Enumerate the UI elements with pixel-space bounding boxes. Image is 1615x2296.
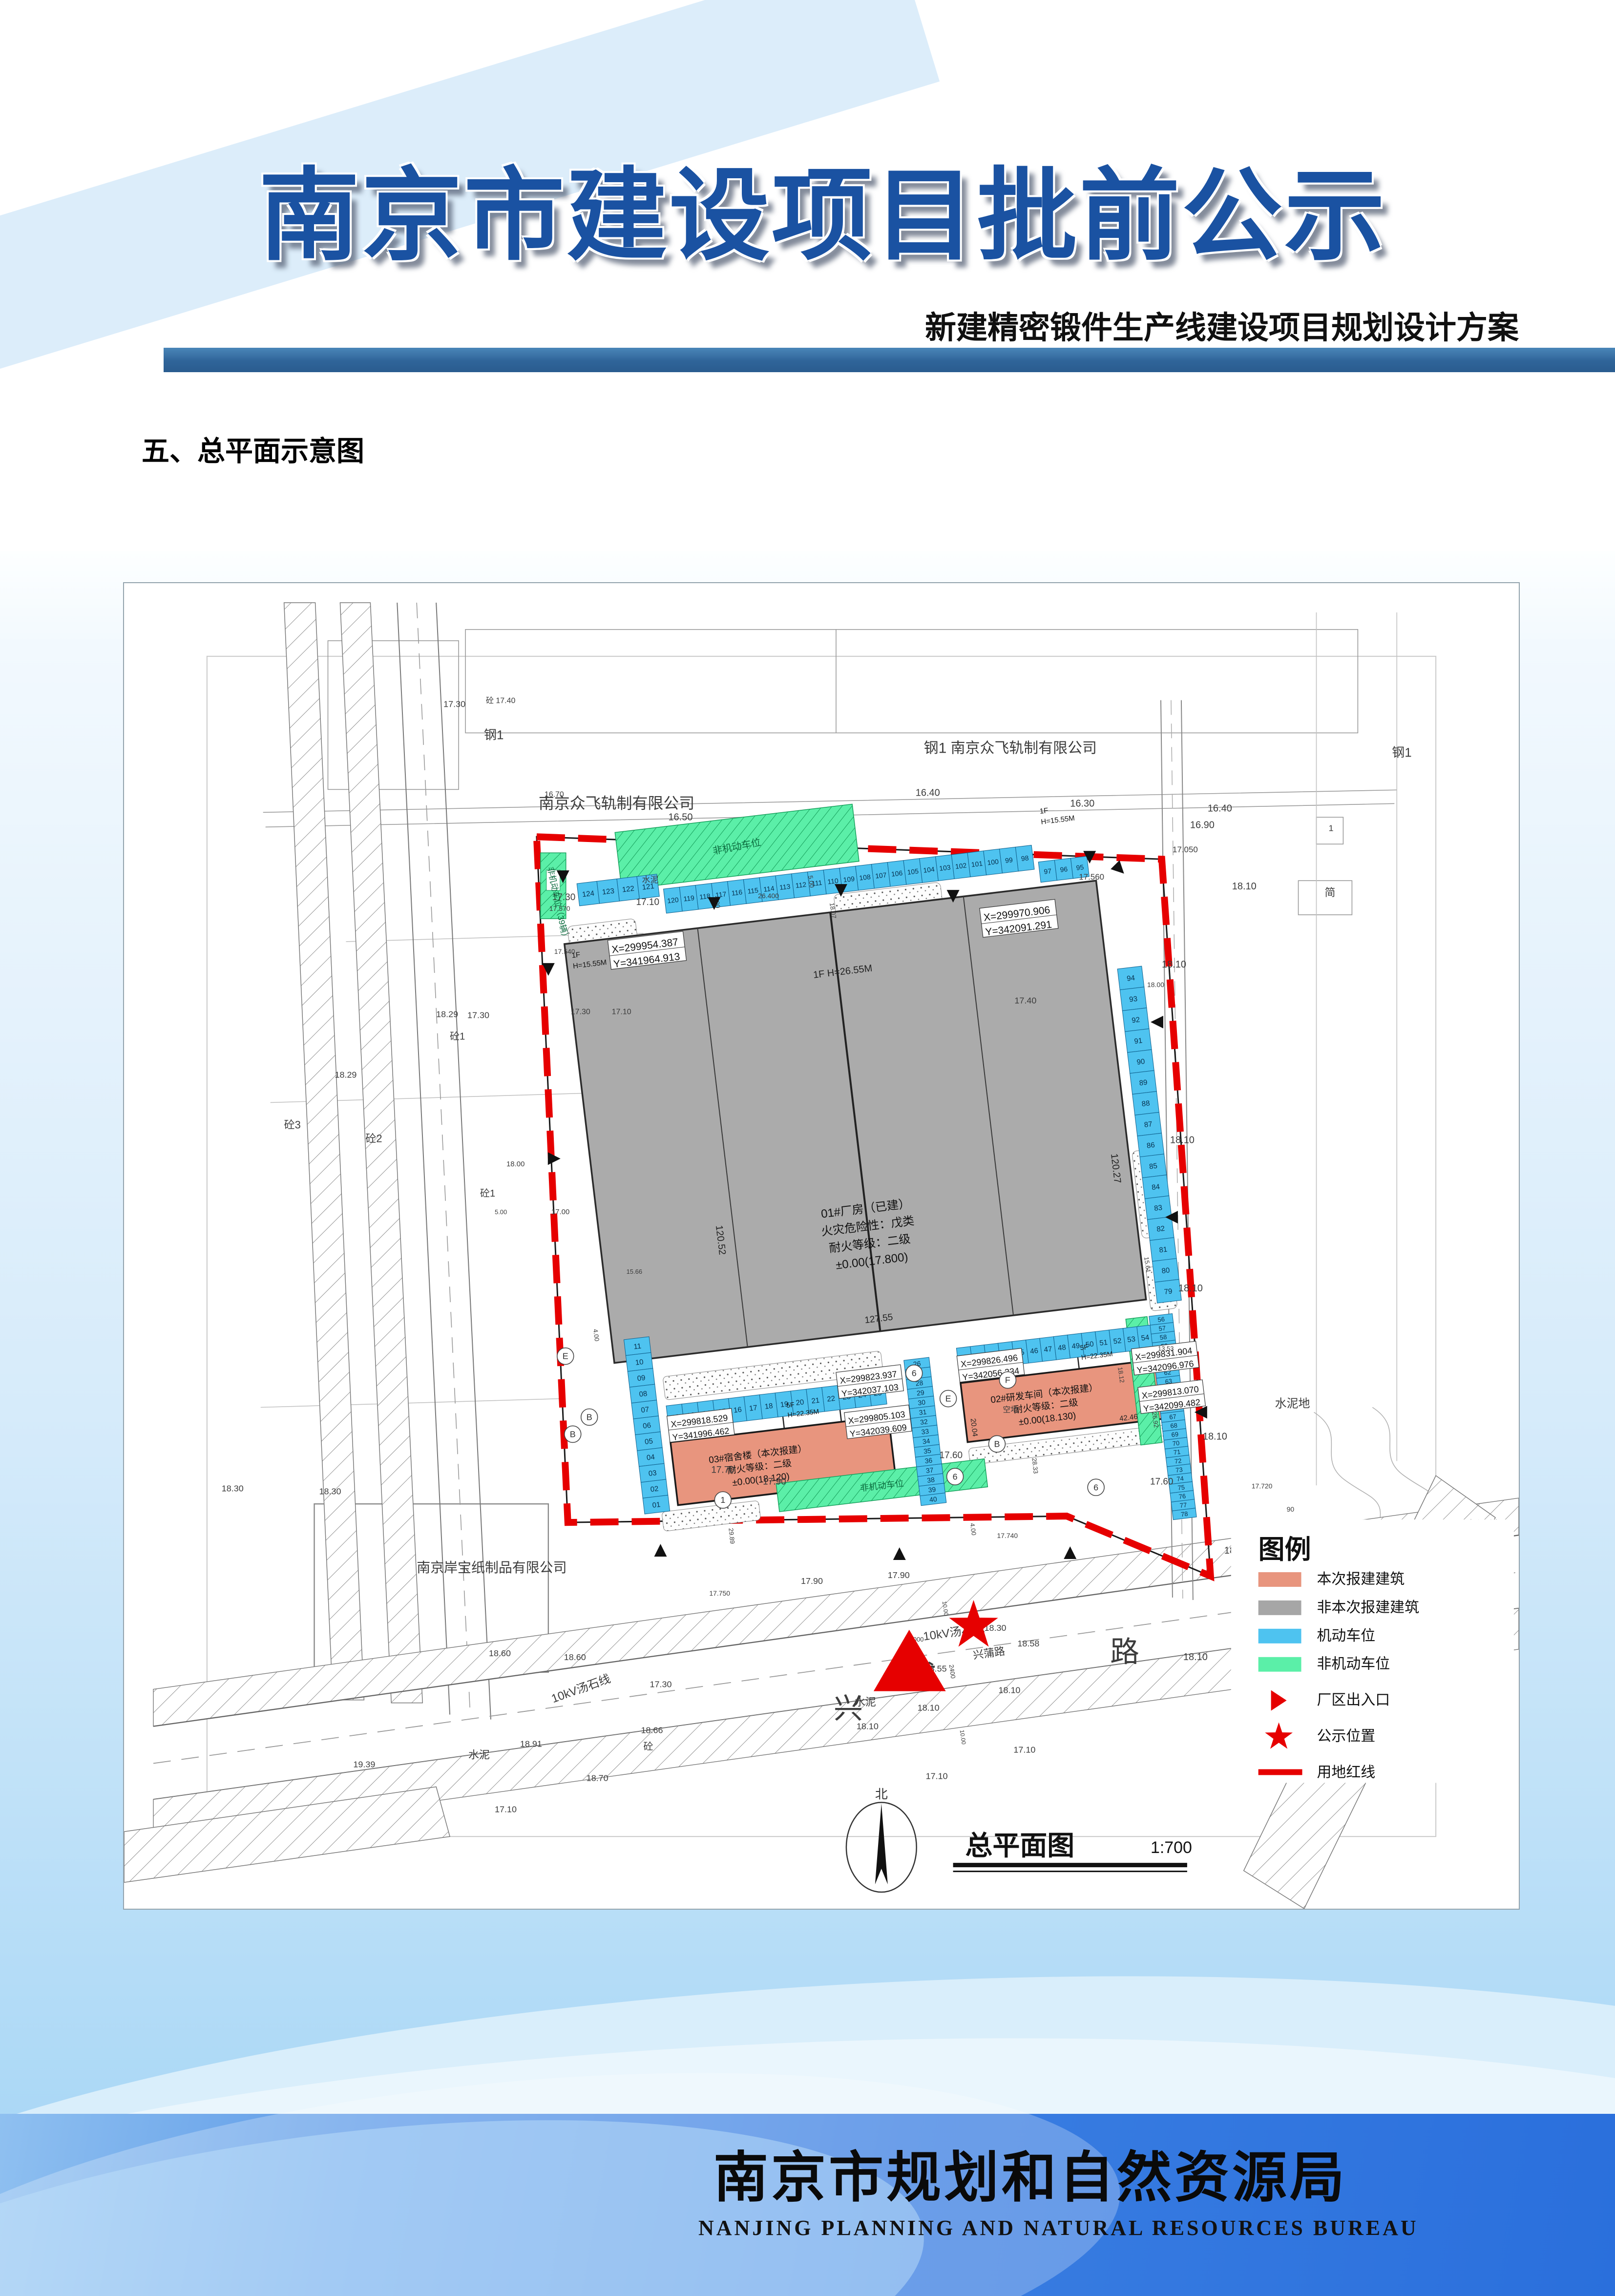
project-subtitle: 新建精密锻件生产线建设项目规划设计方案 <box>733 303 1519 348</box>
stall-number: 05 <box>644 1437 653 1446</box>
legend-swatch <box>1258 1657 1301 1672</box>
stall-number: 86 <box>1146 1141 1155 1150</box>
stall-number: 49 <box>1071 1342 1081 1351</box>
svg-text:E: E <box>563 1351 568 1361</box>
map-annotation: 18.70 <box>587 1773 608 1783</box>
map-annotation: 空地 <box>1003 1405 1018 1414</box>
stall-number: 53 <box>1127 1335 1136 1344</box>
map-annotation: 16.90 <box>1190 820 1215 830</box>
map-annotation: 10.00 <box>959 1729 967 1745</box>
stall-number: 67 <box>1169 1412 1176 1421</box>
north-compass: 北 <box>846 1787 917 1892</box>
legend-swatch <box>1258 1572 1301 1587</box>
plan-caption-scale: 1:700 <box>1151 1838 1192 1857</box>
map-annotation: 90 <box>1287 1505 1295 1513</box>
stall-number: 31 <box>919 1408 927 1416</box>
section-heading: 五、总平面示意图 <box>142 429 364 469</box>
map-legend: 图例 本次报建建筑非本次报建建筑机动车位非机动车位厂区出入口公示位置用地红线 <box>1231 1519 1514 1783</box>
map-annotation: 18.10 <box>857 1722 879 1731</box>
map-annotation: 28.33 <box>1030 1457 1039 1474</box>
stall-number: 109 <box>843 875 855 884</box>
map-annotation: 17.10 <box>636 897 659 907</box>
legend-item: 机动车位 <box>1258 1628 1376 1644</box>
map-annotation: 水泥 <box>855 1696 876 1708</box>
stall-number: 105 <box>907 867 919 876</box>
map-annotation: 18.10 <box>1232 881 1257 892</box>
map-annotation: 砼 <box>644 1741 653 1752</box>
stall-number: 46 <box>1029 1347 1039 1356</box>
bureau-name-en: NANJING PLANNING AND NATURAL RESOURCES B… <box>698 2215 1363 2240</box>
map-annotation: 18.10 <box>1183 1652 1208 1663</box>
north-label: 北 <box>875 1787 888 1801</box>
map-annotation: 29.89 <box>727 1528 736 1544</box>
map-annotation: 18.29 <box>436 1010 458 1019</box>
stall-number: 94 <box>1126 974 1135 983</box>
map-annotation: 18.66 <box>641 1726 663 1735</box>
stall-number: 16 <box>733 1406 742 1415</box>
map-annotation: 17.40 <box>1014 996 1036 1006</box>
legend-swatch <box>1258 1629 1301 1643</box>
stall-number: 95 <box>1076 863 1085 872</box>
stall-number: 74 <box>1176 1474 1184 1483</box>
stall-number: 34 <box>922 1437 931 1446</box>
stall-number: 101 <box>971 860 983 869</box>
map-annotation: 水泥 <box>468 1748 490 1761</box>
title-underline-bar <box>164 348 1615 372</box>
stall-number: 69 <box>1171 1431 1179 1439</box>
site-plan-svg: 1241231221211201191181171161151141131121… <box>124 583 1519 1909</box>
stall-number: 93 <box>1129 995 1138 1004</box>
map-annotation: 16.40 <box>1208 803 1232 814</box>
stall-number: 71 <box>1173 1448 1181 1456</box>
stall-number: 120 <box>667 896 679 905</box>
map-annotation: 南京岸宝纸制品有限公司 <box>417 1560 566 1575</box>
site-content: 1241231221211201191181171161151141131121… <box>552 771 1218 1583</box>
stall-number: 03 <box>648 1469 657 1478</box>
map-annotation: 18.60 <box>489 1648 511 1658</box>
stall-number: 47 <box>1044 1345 1053 1354</box>
map-annotation: 17.740 <box>997 1532 1018 1539</box>
map-annotation: 18.10 <box>998 1685 1020 1695</box>
map-annotation: 17.90 <box>888 1570 910 1580</box>
site-plan-drawing: 1241231221211201191181171161151141131121… <box>123 582 1520 1910</box>
stall-number: 38 <box>926 1475 935 1484</box>
stall-number: 01 <box>652 1500 661 1510</box>
legend-label: 机动车位 <box>1317 1628 1376 1644</box>
map-annotation: 18.60 <box>564 1652 586 1662</box>
map-annotation: 17.30 <box>571 1008 590 1016</box>
stall-number: 58 <box>1159 1333 1167 1342</box>
map-annotation: 17.00 <box>551 1208 569 1216</box>
stall-number: 72 <box>1174 1457 1182 1465</box>
building-label: 5F <box>1080 1343 1089 1351</box>
legend-item: 非本次报建建筑 <box>1258 1600 1419 1616</box>
stall-number: 77 <box>1179 1501 1187 1510</box>
stall-number: 122 <box>622 885 635 894</box>
bureau-name-cn: 南京市规划和自然资源局 <box>698 2133 1363 2212</box>
map-annotation: 18.10 <box>1170 1135 1195 1145</box>
building-label: 1F <box>1039 806 1049 816</box>
map-annotation: 17.10 <box>612 1008 631 1016</box>
direction-arrow-icon <box>1151 1016 1163 1029</box>
stall-number: 09 <box>637 1373 646 1383</box>
stall-number: 29 <box>916 1389 925 1397</box>
map-annotation: 砼2 <box>365 1132 382 1144</box>
stall-number: 70 <box>1172 1439 1180 1448</box>
svg-text:B: B <box>587 1412 592 1422</box>
stall-number: 17 <box>749 1404 758 1413</box>
legend-item: 非机动车位 <box>1258 1656 1390 1672</box>
stall-number: 119 <box>683 894 695 903</box>
legend-label: 本次报建建筑 <box>1317 1571 1405 1587</box>
stall-number: 18 <box>764 1402 774 1411</box>
map-annotation: 17.560 <box>1079 872 1104 882</box>
building-label: H=15.55M <box>1041 814 1075 826</box>
map-annotation: 18.30 <box>222 1483 244 1493</box>
stall-number: 81 <box>1159 1245 1168 1255</box>
stall-number: 88 <box>1141 1099 1151 1108</box>
map-annotation: 砼 17.40 <box>486 696 515 705</box>
map-annotation: 17.30 <box>443 699 465 709</box>
stall-number: 100 <box>987 858 999 867</box>
stall-number: 92 <box>1131 1015 1140 1025</box>
stall-number: 21 <box>811 1396 820 1406</box>
map-annotation: 1 <box>1328 823 1333 833</box>
stall-number: 54 <box>1141 1333 1150 1343</box>
map-annotation: 18.10 <box>918 1703 940 1713</box>
svg-text:6: 6 <box>912 1369 917 1378</box>
map-annotation: 18.10 <box>1178 1283 1203 1294</box>
svg-text:E: E <box>945 1394 951 1404</box>
stall-number: 124 <box>582 889 595 899</box>
direction-arrow-icon <box>654 1544 667 1557</box>
map-annotation: 4.00 <box>592 1328 601 1342</box>
direction-arrow-icon <box>1064 1546 1076 1559</box>
stall-number: 40 <box>929 1495 938 1504</box>
map-annotation: 18.10 <box>1203 1431 1227 1442</box>
svg-text:6: 6 <box>953 1472 958 1481</box>
map-annotation: 2400 <box>948 1664 957 1679</box>
legend-label: 非本次报建建筑 <box>1317 1600 1420 1616</box>
map-annotation: 砼3 <box>284 1118 301 1131</box>
map-annotation: 17.720 <box>1252 1482 1273 1490</box>
map-annotation: 兴蒲路 <box>972 1645 1006 1662</box>
stall-number: 123 <box>602 887 615 897</box>
stall-number: 107 <box>875 871 887 880</box>
stall-number: 75 <box>1177 1483 1185 1492</box>
stall-number: 08 <box>639 1390 648 1399</box>
stall-number: 35 <box>923 1447 932 1455</box>
map-annotation: 15.66 <box>627 1268 642 1275</box>
stall-number: 106 <box>891 869 903 878</box>
stall-number: 07 <box>641 1405 650 1414</box>
map-annotation: 18.91 <box>520 1739 542 1748</box>
stall-number: 68 <box>1170 1422 1178 1430</box>
map-annotation: 19.39 <box>353 1759 375 1769</box>
legend-redline-icon <box>1258 1769 1302 1775</box>
map-annotation: 17.750 <box>709 1589 730 1597</box>
map-annotation: 16.50 <box>668 812 692 822</box>
direction-arrow-icon <box>1111 860 1129 878</box>
stall-number: 84 <box>1151 1182 1160 1192</box>
svg-text:F: F <box>1005 1375 1010 1385</box>
stall-number: 37 <box>925 1466 934 1474</box>
map-annotation: 17.70 <box>711 1465 734 1475</box>
stall-number: 48 <box>1057 1343 1067 1352</box>
map-annotation: 5.00 <box>495 1208 507 1216</box>
map-annotation: 简 <box>1324 886 1335 899</box>
stall-number: 22 <box>826 1394 836 1404</box>
stall-number: 56 <box>1157 1315 1165 1324</box>
map-annotation: 16.70 <box>545 790 564 799</box>
legend-label: 非机动车位 <box>1317 1656 1390 1672</box>
map-annotation: 17.60 <box>1150 1476 1173 1487</box>
map-annotation: 17.10 <box>495 1804 517 1814</box>
plan-caption-title: 总平面图 <box>965 1830 1075 1861</box>
stalls-left-col: 1110090807060504030201 <box>624 1337 670 1514</box>
stall-number: 57 <box>1158 1324 1166 1332</box>
stall-number: 103 <box>939 863 951 872</box>
map-annotation: 26.400 <box>758 892 779 900</box>
stall-number: 80 <box>1161 1266 1171 1275</box>
map-annotation: 18.00 <box>1147 981 1164 989</box>
stall-number: 32 <box>920 1417 928 1426</box>
stall-number: 06 <box>642 1421 651 1431</box>
map-annotation: 钢1 <box>484 728 503 742</box>
map-annotation: 水泥 <box>642 875 659 885</box>
stall-number: 90 <box>1136 1057 1146 1067</box>
stall-number: 02 <box>650 1485 659 1494</box>
map-annotation: 18.30 <box>319 1486 341 1496</box>
map-annotation: 4.00 <box>969 1522 978 1536</box>
stall-number: 87 <box>1144 1120 1153 1129</box>
map-annotation: 水泥地 <box>1275 1397 1310 1411</box>
map-annotation: 17.540 <box>554 948 575 955</box>
legend-label: 用地红线 <box>1317 1764 1376 1780</box>
stall-number: 39 <box>928 1485 937 1494</box>
map-annotation: 路 <box>1110 1636 1139 1668</box>
poster-page: 南京市建设项目批前公示 新建精密锻件生产线建设项目规划设计方案 五、总平面示意图 <box>0 0 1615 2296</box>
map-annotation: 砼1 <box>450 1031 465 1042</box>
stall-number: 76 <box>1178 1492 1186 1500</box>
stall-number: 91 <box>1134 1036 1143 1046</box>
map-annotation: 15.61 <box>1143 1256 1152 1273</box>
stall-number: 112 <box>795 881 807 890</box>
stall-number: 33 <box>921 1427 930 1436</box>
stall-number: 108 <box>859 873 871 882</box>
legend-label: 公示位置 <box>1317 1728 1376 1745</box>
stall-number: 04 <box>646 1453 655 1462</box>
coordinate-callout: X=299805.103Y=342039.609 <box>844 1405 912 1439</box>
stall-number: 113 <box>779 882 791 891</box>
map-annotation: 18.00 <box>506 1160 524 1168</box>
stall-number: 36 <box>924 1456 933 1465</box>
legend-title: 图例 <box>1258 1535 1311 1564</box>
stall-number: 79 <box>1164 1287 1173 1296</box>
map-annotation: 16.40 <box>916 787 940 798</box>
stall-number: 73 <box>1175 1466 1183 1474</box>
map-annotation: 18.29 <box>335 1070 357 1080</box>
stall-number: 83 <box>1154 1203 1163 1213</box>
svg-text:B: B <box>994 1439 1000 1449</box>
stall-number: 78 <box>1180 1510 1188 1518</box>
stall-number: 104 <box>923 865 935 874</box>
stall-number: 82 <box>1156 1224 1165 1234</box>
stall-number: 97 <box>1044 867 1052 876</box>
map-annotation: 18.58 <box>1017 1639 1039 1648</box>
map-annotation: 17.90 <box>801 1576 823 1586</box>
legend-swatch <box>1258 1601 1301 1615</box>
stall-number: 116 <box>731 888 743 897</box>
map-annotation: 17.10 <box>926 1771 948 1781</box>
stall-number: 20 <box>796 1398 805 1407</box>
map-annotation: 17.050 <box>1173 845 1198 854</box>
map-annotation: 17.30 <box>650 1680 672 1689</box>
map-annotation: 17.90 <box>763 1476 786 1487</box>
footer-band: 南京市规划和自然资源局 NANJING PLANNING AND NATURAL… <box>0 2114 1615 2296</box>
svg-text:1: 1 <box>720 1495 725 1505</box>
svg-text:6: 6 <box>1093 1482 1098 1492</box>
direction-arrow-icon <box>893 1547 906 1560</box>
map-annotation: 18.10 <box>1162 959 1186 970</box>
map-annotation: 16.30 <box>1070 798 1094 809</box>
map-annotation: 13.53 <box>1158 1345 1174 1352</box>
building-label: 5F <box>786 1400 795 1409</box>
page-title: 南京市建设项目批前公示 <box>195 134 1450 280</box>
stall-number: 89 <box>1139 1078 1148 1088</box>
map-annotation: 17.30 <box>467 1011 489 1020</box>
map-annotation: 17.60 <box>940 1450 963 1460</box>
stall-number: 98 <box>1021 854 1029 863</box>
legend-item: 本次报建建筑 <box>1258 1571 1405 1587</box>
map-annotation: 17.10 <box>1013 1745 1035 1754</box>
stall-number: 85 <box>1149 1162 1158 1171</box>
legend-label: 厂区出入口 <box>1317 1692 1390 1708</box>
stall-number: 51 <box>1099 1338 1108 1348</box>
stall-number: 11 <box>633 1342 642 1351</box>
stall-number: 115 <box>747 886 759 895</box>
stall-number: 30 <box>917 1398 926 1407</box>
stall-number: 10 <box>635 1358 644 1367</box>
stall-number: 99 <box>1005 856 1013 864</box>
map-annotation: 砼1 <box>480 1188 495 1199</box>
stall-number: 102 <box>955 861 967 870</box>
stall-number: 96 <box>1060 865 1069 874</box>
svg-text:B: B <box>570 1429 576 1439</box>
stall-number: 52 <box>1113 1337 1122 1346</box>
map-annotation: 钢1 <box>1392 745 1411 759</box>
map-annotation: 钢1 南京众飞轨制有限公司 <box>924 740 1097 756</box>
